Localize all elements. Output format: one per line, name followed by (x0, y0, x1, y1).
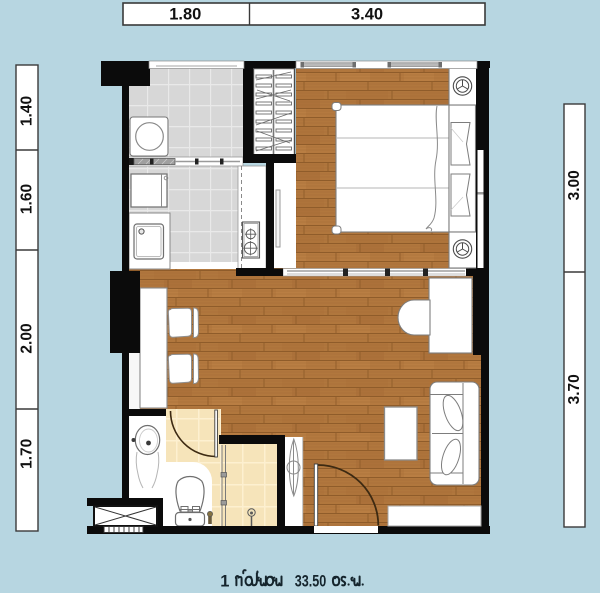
svg-text:2.00: 2.00 (19, 323, 36, 353)
svg-text:1.80: 1.80 (169, 6, 201, 24)
svg-text:1: 1 (220, 573, 229, 591)
svg-text:1.60: 1.60 (19, 184, 36, 214)
svg-text:1.40: 1.40 (19, 96, 36, 126)
svg-text:1.70: 1.70 (19, 439, 36, 469)
svg-text:3.70: 3.70 (566, 374, 583, 404)
svg-text:33.50: 33.50 (295, 573, 327, 591)
svg-text:3.40: 3.40 (351, 6, 383, 24)
svg-text:3.00: 3.00 (566, 170, 583, 200)
